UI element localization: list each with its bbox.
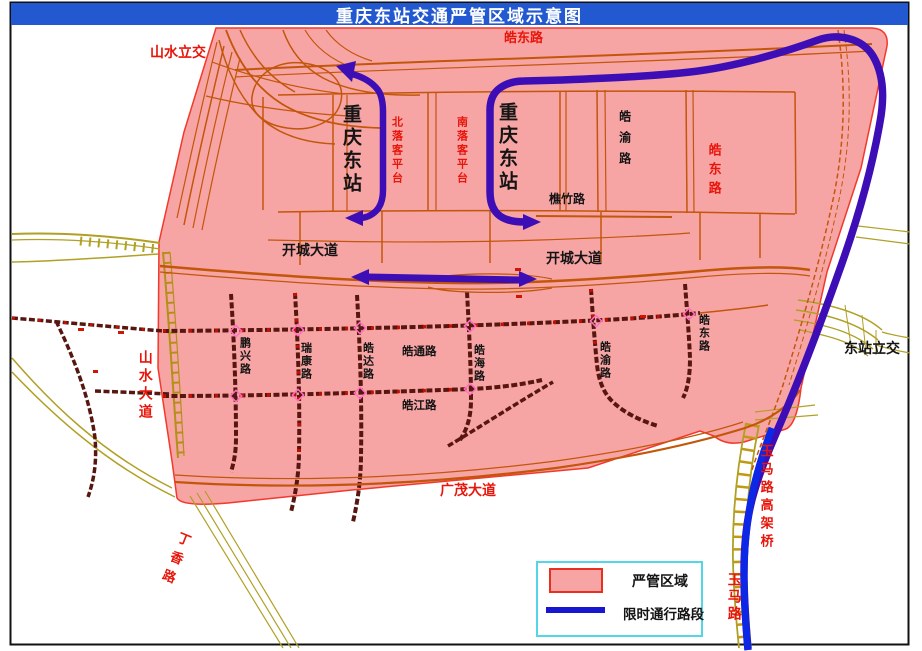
label-haohai-road: 皓海路 — [473, 344, 485, 383]
label-shanshui-avenue: 山水大道 — [137, 350, 152, 422]
label-haoda-road: 皓达路 — [362, 342, 374, 381]
label-ruikang-road: 瑞康路 — [300, 342, 312, 381]
legend-route-line — [546, 607, 605, 613]
label-haodong-road-top: 皓东路 — [504, 32, 543, 46]
label-dongzhan-interchange: 东站立交 — [844, 342, 900, 357]
page-title: 重庆东站交通严管区域示意图 — [336, 2, 583, 27]
label-kaicheng-avenue-west: 开城大道 — [282, 244, 338, 259]
label-south-platform: 南落客平台 — [456, 116, 468, 186]
label-shanshui-interchange: 山水立交 — [150, 46, 206, 61]
label-haodong-road-right: 皓东路 — [706, 143, 720, 200]
legend-zone-label: 严管区域 — [632, 571, 688, 591]
traffic-control-map: 重庆东站交通严管区域示意图 山水立交 皓东路 重庆东站 北落客平台 南落客平台 … — [0, 0, 922, 651]
label-haojiang-road: 皓江路 — [402, 399, 437, 411]
label-yuma-road: 玉马路 — [726, 572, 741, 623]
label-kaicheng-avenue-east: 开城大道 — [546, 252, 602, 267]
label-qiaozhu-road: 樵竹路 — [549, 193, 585, 206]
label-haoyu-road-upper: 皓渝路 — [618, 110, 631, 173]
label-haotong-road: 皓通路 — [402, 345, 437, 357]
route-kaicheng — [366, 277, 522, 280]
label-yuma-viaduct: 玉马路高架桥 — [758, 444, 772, 552]
label-station-east: 重庆东站 — [496, 102, 516, 194]
label-haoyu-road-lower: 皓渝路 — [599, 341, 611, 380]
title-bar: 重庆东站交通严管区域示意图 — [11, 3, 908, 25]
legend-route-label: 限时通行路段 — [623, 603, 704, 623]
label-north-platform: 北落客平台 — [391, 116, 403, 186]
legend-zone-swatch — [549, 568, 603, 593]
map-canvas — [0, 0, 922, 651]
legend: 严管区域 限时通行路段 — [536, 561, 703, 637]
label-station-west: 重庆东站 — [340, 104, 360, 196]
label-haodong-road-lower: 皓东路 — [698, 314, 710, 353]
label-guangmao-avenue: 广茂大道 — [440, 484, 496, 499]
label-pengxing-road: 鹏兴路 — [239, 337, 251, 376]
